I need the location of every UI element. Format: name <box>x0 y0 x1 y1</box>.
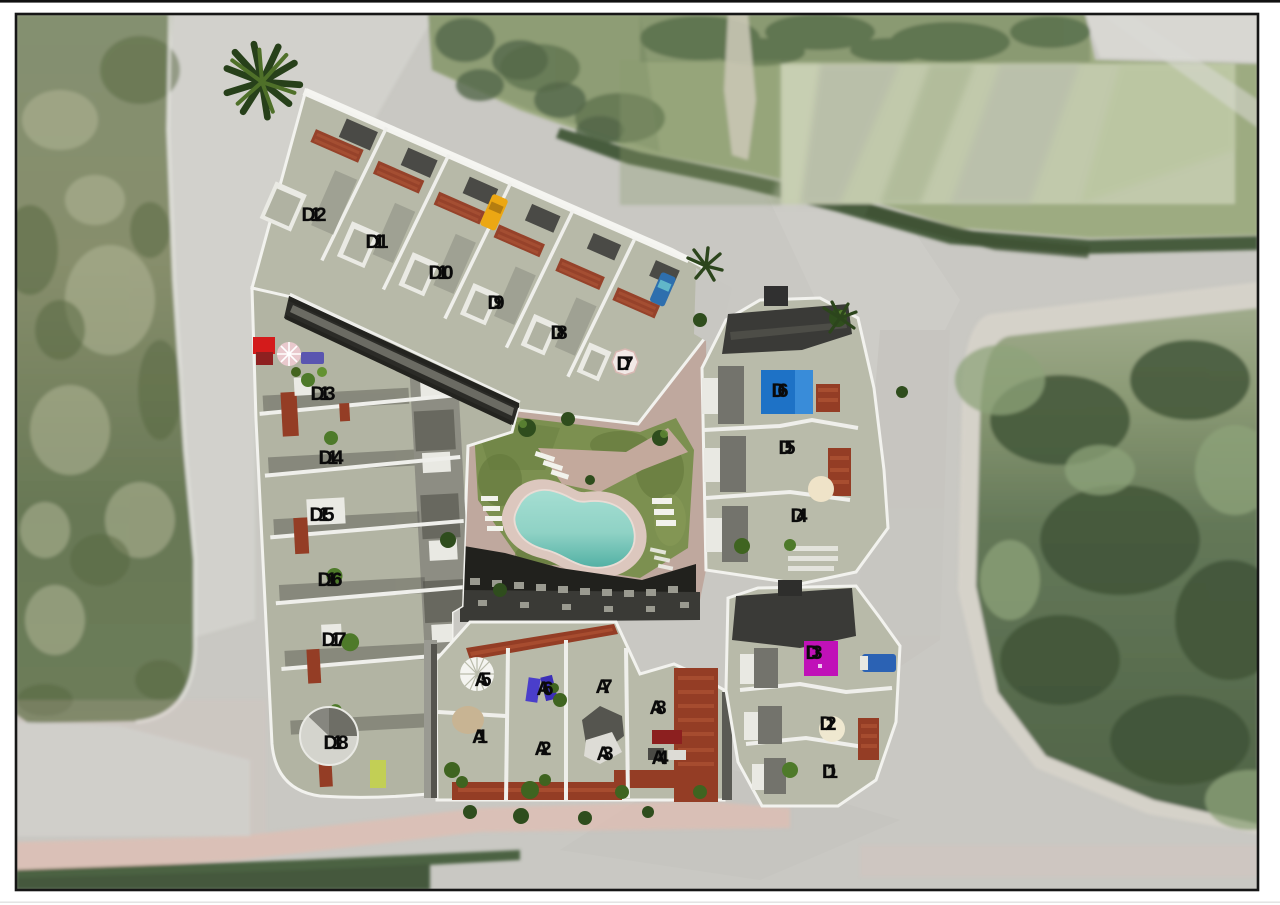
svg-text:D7: D7 <box>617 353 634 375</box>
svg-text:D11: D11 <box>366 231 389 253</box>
svg-text:A5: A5 <box>475 669 492 691</box>
svg-text:A2: A2 <box>535 738 552 760</box>
svg-text:D14: D14 <box>319 447 344 469</box>
svg-text:D1: D1 <box>822 761 838 783</box>
svg-text:A8: A8 <box>650 697 667 719</box>
svg-text:D13: D13 <box>311 383 336 405</box>
svg-text:D15: D15 <box>310 504 335 526</box>
svg-text:D5: D5 <box>779 437 796 459</box>
svg-text:D10: D10 <box>429 262 454 284</box>
svg-text:D9: D9 <box>488 292 505 314</box>
svg-text:A7: A7 <box>596 676 613 698</box>
svg-text:D16: D16 <box>318 569 343 591</box>
svg-text:D17: D17 <box>322 629 347 651</box>
svg-text:D6: D6 <box>772 380 789 402</box>
svg-text:D3: D3 <box>806 642 823 664</box>
svg-text:D2: D2 <box>820 713 837 735</box>
svg-text:A1: A1 <box>472 726 488 748</box>
svg-text:A3: A3 <box>597 743 614 765</box>
svg-text:A4: A4 <box>652 747 669 769</box>
svg-text:D8: D8 <box>551 322 568 344</box>
svg-text:D4: D4 <box>791 505 808 527</box>
svg-text:A6: A6 <box>537 678 554 700</box>
svg-text:D18: D18 <box>324 732 349 754</box>
svg-text:D12: D12 <box>302 204 327 226</box>
